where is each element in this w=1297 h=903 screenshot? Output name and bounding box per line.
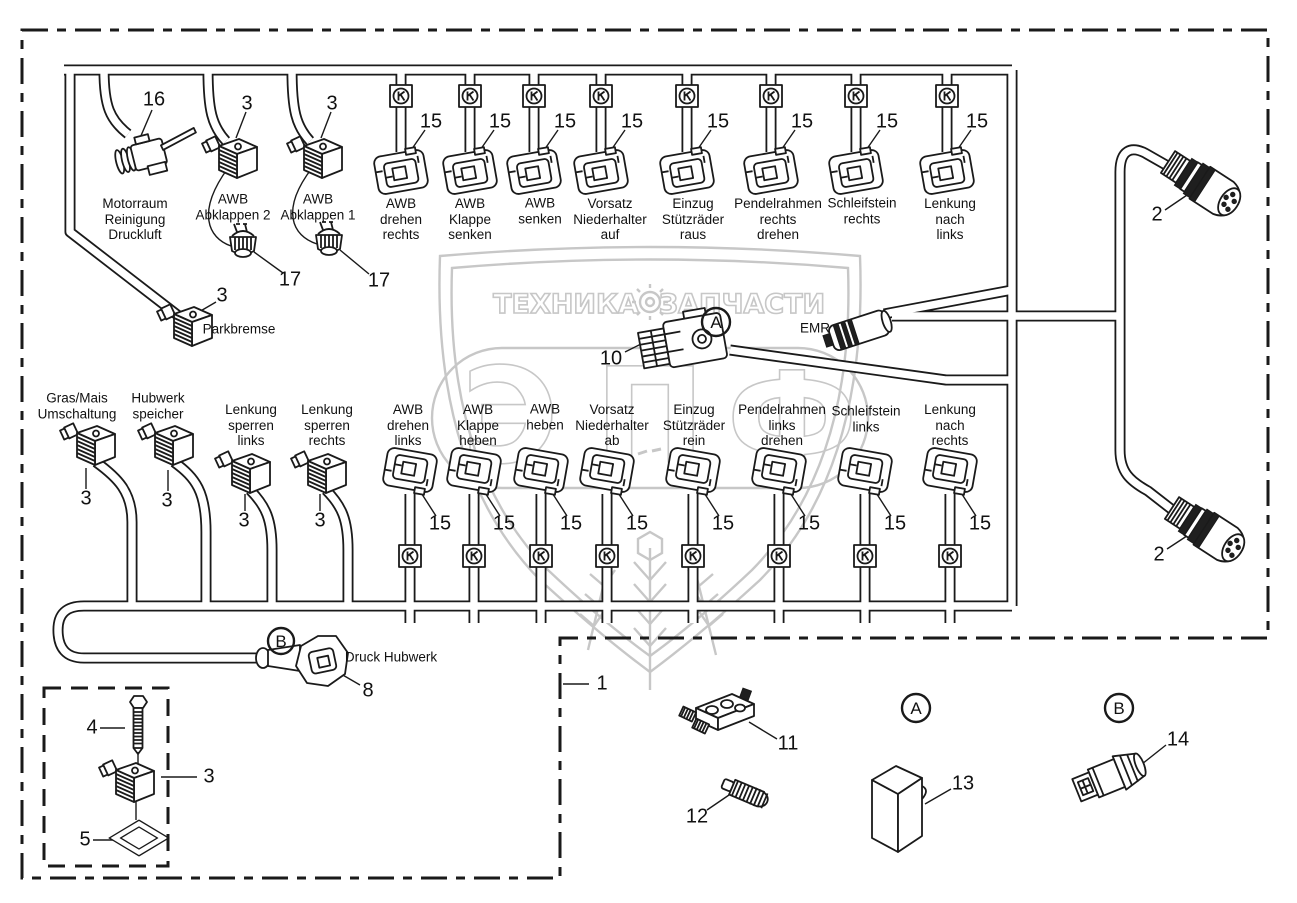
bolt-icon — [130, 696, 147, 754]
connector-label-awb-heben: AWB heben — [526, 402, 564, 433]
svg-text:A: A — [710, 313, 722, 332]
connector-label-vorsatz-auf: Vorsatz Niederhalter auf — [573, 196, 647, 243]
part-number-4: 4 — [86, 717, 97, 740]
svg-text:B: B — [275, 632, 286, 651]
part-number-15: 15 — [969, 513, 991, 536]
svg-text:A: A — [910, 699, 922, 718]
part-number-3-parkbremse: 3 — [216, 285, 227, 308]
round-connector-top-icon — [1158, 146, 1247, 223]
part-number-10: 10 — [600, 348, 622, 371]
part-number-15: 15 — [420, 111, 442, 134]
part-number-3b: 3 — [326, 93, 337, 116]
connector-label-einzug-rein: Einzug Stützräder rein — [663, 402, 725, 449]
part-number-3: 3 — [161, 490, 172, 513]
awb-abklappen1-connector-icon — [287, 136, 342, 178]
control-box-icon — [872, 766, 926, 852]
connector-label-motorraum: Motorraum Reinigung Druckluft — [102, 196, 167, 243]
part-number-11: 11 — [778, 733, 799, 756]
svg-text:B: B — [1113, 699, 1124, 718]
connector-label-awb-klappe-heben: AWB Klappe heben — [457, 402, 499, 449]
part-number-2-bottom: 2 — [1153, 544, 1164, 567]
part-number-15: 15 — [712, 513, 734, 536]
round-connector-bottom-icon — [1162, 492, 1251, 569]
part-number-8: 8 — [362, 680, 373, 703]
part-number-15: 15 — [626, 513, 648, 536]
valve-connector-icons-top — [373, 146, 975, 195]
connector-label-lenkung-sperren-rechts: Lenkung sperren rechts — [301, 402, 353, 449]
part-number-3: 3 — [80, 488, 91, 511]
callout-b-part: B — [1105, 694, 1133, 722]
connector-label-awb-drehen-links: AWB drehen links — [387, 402, 429, 449]
part-number-3: 3 — [314, 510, 325, 533]
part-number-15: 15 — [707, 111, 729, 134]
part-number-2-top: 2 — [1151, 204, 1162, 227]
valve-block-icon — [679, 688, 754, 733]
plug17-a-icon — [230, 224, 256, 257]
watermark-banner-left: ТЕХНИКА — [493, 289, 639, 320]
part-number-13: 13 — [952, 773, 974, 796]
awb-abklappen2-connector-icon — [202, 136, 257, 178]
connector-label-pendelrahmen-links: Pendelrahmen links drehen — [738, 402, 826, 449]
pressure-sensor-icon — [1070, 747, 1150, 807]
lenkung-sperren-rechts-connector-icon — [291, 451, 346, 493]
part-number-15: 15 — [791, 111, 813, 134]
diagram-artwork: Э П Ф ТЕХНИКА ЗАПЧАСТИ — [0, 0, 1297, 903]
druck-hubwerk-connector-icon — [256, 636, 348, 686]
part-number-16: 16 — [143, 89, 165, 112]
connector-label-schleifstein-rechts: Schleifstein rechts — [827, 196, 896, 227]
lenkung-sperren-links-connector-icon — [215, 451, 270, 493]
connector-label-pendelrahmen-rechts: Pendelrahmen rechts drehen — [734, 196, 822, 243]
part-number-3: 3 — [238, 510, 249, 533]
inset-connector-icon — [99, 760, 154, 802]
part-number-15: 15 — [876, 111, 898, 134]
connector-label-hubwerk-speicher: Hubwerk speicher — [131, 391, 184, 422]
connector-label-emr: EMR — [800, 320, 830, 336]
connector-label-lenkung-sperren-links: Lenkung sperren links — [225, 402, 277, 449]
grease-plug-icon — [719, 775, 770, 810]
connector-label-druck-hubwerk: Druck Hubwerk — [345, 649, 437, 665]
connector-label-einzug-raus: Einzug Stützräder raus — [662, 196, 724, 243]
part-number-15: 15 — [429, 513, 451, 536]
part-number-15: 15 — [554, 111, 576, 134]
part-number-15: 15 — [966, 111, 988, 134]
seal-icon — [109, 820, 168, 856]
connector-label-gras-mais: Gras/Mais Umschaltung — [38, 391, 117, 422]
part-number-15: 15 — [798, 513, 820, 536]
part-number-15: 15 — [560, 513, 582, 536]
plug17-b-icon — [316, 222, 342, 255]
part-number-3a: 3 — [241, 93, 252, 116]
connector-label-awb-drehen-rechts: AWB drehen rechts — [380, 196, 422, 243]
part-number-17a: 17 — [279, 269, 301, 292]
hubwerk-speicher-connector-icon — [138, 423, 193, 465]
callout-b-main: B — [268, 628, 294, 654]
gras-mais-connector-icon — [60, 423, 115, 465]
part-number-15: 15 — [884, 513, 906, 536]
part-number-14: 14 — [1167, 729, 1189, 752]
callout-a-part: A — [902, 694, 930, 722]
part-number-15: 15 — [493, 513, 515, 536]
part-number-5: 5 — [79, 829, 90, 852]
clamp-icons-top — [390, 85, 958, 107]
part-number-1: 1 — [596, 673, 607, 696]
part-number-17b: 17 — [368, 270, 390, 293]
connector-label-lenkung-rechts: Lenkung nach rechts — [924, 402, 976, 449]
part-number-15: 15 — [621, 111, 643, 134]
connector-label-parkbremse: Parkbremse — [203, 321, 276, 337]
connector-label-awb-senken: AWB senken — [518, 196, 562, 227]
connector-label-lenkung-links: Lenkung nach links — [924, 196, 976, 243]
connector-label-awb-abklappen1: AWB Abklappen 1 — [280, 192, 355, 223]
parts-diagram: Э П Ф ТЕХНИКА ЗАПЧАСТИ — [0, 0, 1297, 903]
connector-label-vorsatz-ab: Vorsatz Niederhalter ab — [575, 402, 649, 449]
connector-label-awb-klappe-senken: AWB Klappe senken — [448, 196, 492, 243]
clamp-icons-bottom — [399, 545, 961, 567]
part-number-3-inset: 3 — [203, 766, 214, 789]
part-number-12: 12 — [686, 806, 708, 829]
part-number-15: 15 — [489, 111, 511, 134]
connector-label-awb-abklappen2: AWB Abklappen 2 — [195, 192, 270, 223]
connector-label-schleifstein-links: Schleifstein links — [831, 404, 900, 435]
